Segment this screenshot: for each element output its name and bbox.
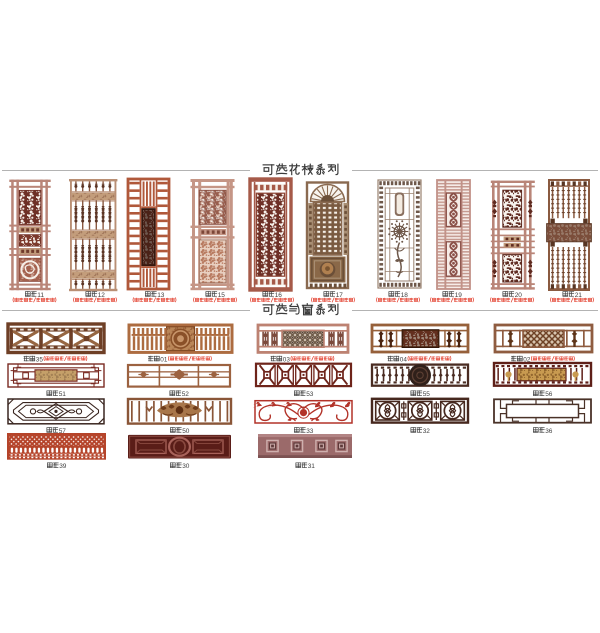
svg-text:32: 32 — [423, 428, 431, 435]
svg-text:52: 52 — [182, 391, 190, 398]
svg-text:56: 56 — [545, 391, 553, 398]
svg-text:04: 04 — [400, 356, 408, 363]
svg-text:03: 03 — [283, 356, 291, 363]
svg-text:36: 36 — [545, 428, 553, 435]
svg-text:35: 35 — [36, 356, 44, 363]
svg-text:31: 31 — [308, 463, 316, 470]
svg-text:53: 53 — [306, 391, 314, 398]
svg-text:50: 50 — [182, 428, 190, 435]
svg-text:33: 33 — [306, 428, 314, 435]
svg-text:55: 55 — [423, 391, 431, 398]
svg-text:30: 30 — [182, 463, 190, 470]
svg-text:01: 01 — [160, 356, 168, 363]
svg-text:39: 39 — [59, 463, 67, 470]
svg-text:51: 51 — [59, 391, 67, 398]
